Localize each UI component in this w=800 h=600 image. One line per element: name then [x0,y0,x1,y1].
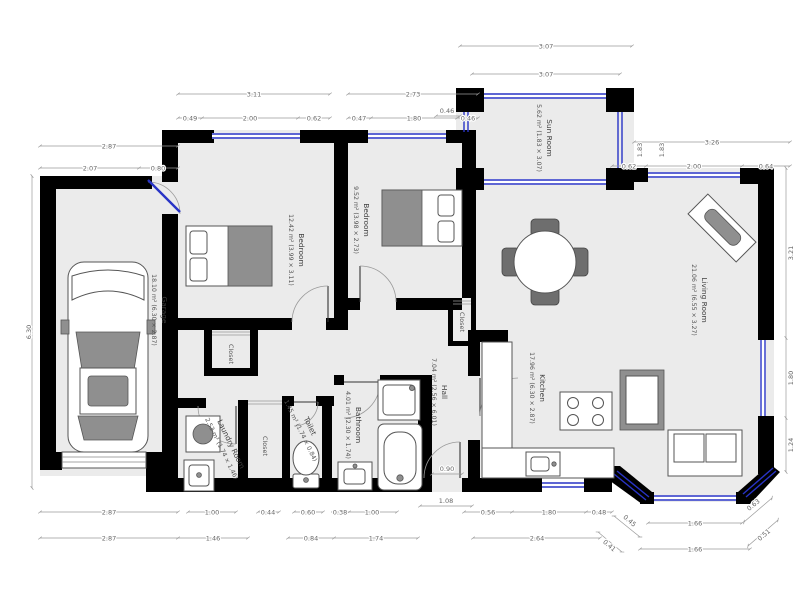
svg-text:2.73: 2.73 [406,91,420,99]
bathtub [378,424,422,490]
window-sunroom-bottom [484,179,606,185]
svg-text:0.41: 0.41 [601,538,617,553]
svg-text:1.83: 1.83 [658,143,666,157]
window-bay-center [654,495,736,501]
svg-text:2.87: 2.87 [102,143,116,151]
svg-text:Bathroom: Bathroom [354,407,363,443]
window-sunroom-top [484,93,606,99]
stove [560,392,612,430]
svg-text:1.80: 1.80 [407,115,421,123]
svg-text:2.87: 2.87 [102,509,116,517]
car [61,262,155,452]
svg-text:Kitchen: Kitchen [538,374,547,402]
svg-text:3.07: 3.07 [539,43,553,51]
svg-text:3.07: 3.07 [539,71,553,79]
svg-text:17.96 m² (6.30 × 2.87): 17.96 m² (6.30 × 2.87) [528,352,535,424]
svg-text:1.74: 1.74 [369,535,383,543]
svg-text:0.62: 0.62 [307,115,321,123]
label-closet3: Closet [261,436,269,456]
label-closet2: Closet [458,312,466,332]
window-bedroom2 [368,133,446,139]
svg-text:1.00: 1.00 [365,509,379,517]
svg-text:0.56: 0.56 [481,509,495,517]
svg-text:1.08: 1.08 [439,497,453,505]
svg-text:Garage: Garage [160,296,169,324]
svg-text:0.45: 0.45 [621,513,637,528]
shower [378,380,420,420]
svg-text:5.62 m² (1.83 × 3.07): 5.62 m² (1.83 × 3.07) [535,104,542,172]
svg-text:0.38: 0.38 [333,509,347,517]
svg-text:6.30: 6.30 [25,325,33,339]
svg-text:0.46: 0.46 [461,115,475,123]
svg-text:1.66: 1.66 [688,520,702,528]
svg-text:2.00: 2.00 [243,115,257,123]
svg-text:9.52 m² (3.98 × 2.73): 9.52 m² (3.98 × 2.73) [352,186,359,254]
bathroom-sink [338,462,372,490]
kitchen-sink [526,452,560,476]
svg-text:0.80: 0.80 [151,165,165,173]
svg-text:2.00: 2.00 [687,163,701,171]
floor-plan-drawing: Garage18.10 m² (6.30 × 2.87) Bedroom12.4… [0,0,800,600]
svg-text:0.90: 0.90 [440,465,454,473]
svg-text:0.62: 0.62 [622,163,636,171]
svg-text:3.26: 3.26 [705,139,719,147]
bed-bedroom2 [382,190,462,246]
svg-text:Bedroom: Bedroom [297,233,306,266]
svg-text:1.24: 1.24 [787,438,795,452]
svg-text:1.00: 1.00 [205,509,219,517]
window-kitchen-bottom [542,482,584,488]
svg-text:7.04 m² (2.56 × 6.01): 7.04 m² (2.56 × 6.01) [430,358,437,426]
svg-text:2.64: 2.64 [530,535,544,543]
window-living-right [760,340,766,416]
svg-text:Bedroom: Bedroom [362,203,371,236]
svg-text:2.87: 2.87 [102,535,116,543]
svg-text:3.21: 3.21 [787,246,795,260]
svg-text:4.01 m² (2.30 × 1.74): 4.01 m² (2.30 × 1.74) [344,391,351,459]
svg-text:1.66: 1.66 [688,546,702,554]
laundry-sink [184,460,214,491]
bed-bedroom1 [186,226,272,286]
svg-text:0.44: 0.44 [261,509,275,517]
sofa [668,430,742,476]
fridge [620,370,664,430]
svg-text:0.84: 0.84 [304,535,318,543]
svg-text:Sun Room: Sun Room [545,119,554,156]
window-bedroom1 [212,133,300,139]
svg-text:0.60: 0.60 [301,509,315,517]
svg-text:0.64: 0.64 [759,163,773,171]
svg-text:0.48: 0.48 [592,509,606,517]
garage-door [62,452,146,468]
svg-text:0.47: 0.47 [352,115,366,123]
svg-text:0.51: 0.51 [756,527,772,542]
svg-text:3.11: 3.11 [247,91,261,99]
svg-text:1.46: 1.46 [206,535,220,543]
svg-text:1.83: 1.83 [636,143,644,157]
svg-text:1.80: 1.80 [542,509,556,517]
label-closet1: Closet [227,344,235,364]
svg-text:12.42 m² (3.99 × 3.11): 12.42 m² (3.99 × 3.11) [287,214,294,286]
svg-text:0.49: 0.49 [183,115,197,123]
svg-text:18.10 m² (6.30 × 2.87): 18.10 m² (6.30 × 2.87) [150,274,157,346]
window-living-top [648,172,740,178]
svg-text:0.46: 0.46 [440,107,454,115]
svg-text:2.07: 2.07 [83,165,97,173]
svg-text:Hall: Hall [440,385,449,399]
svg-text:1.80: 1.80 [787,371,795,385]
svg-text:21.06 m² (6.55 × 3.27): 21.06 m² (6.55 × 3.27) [690,264,697,336]
floor-plan-canvas: Garage18.10 m² (6.30 × 2.87) Bedroom12.4… [0,0,800,600]
svg-text:Living Room: Living Room [700,277,709,322]
